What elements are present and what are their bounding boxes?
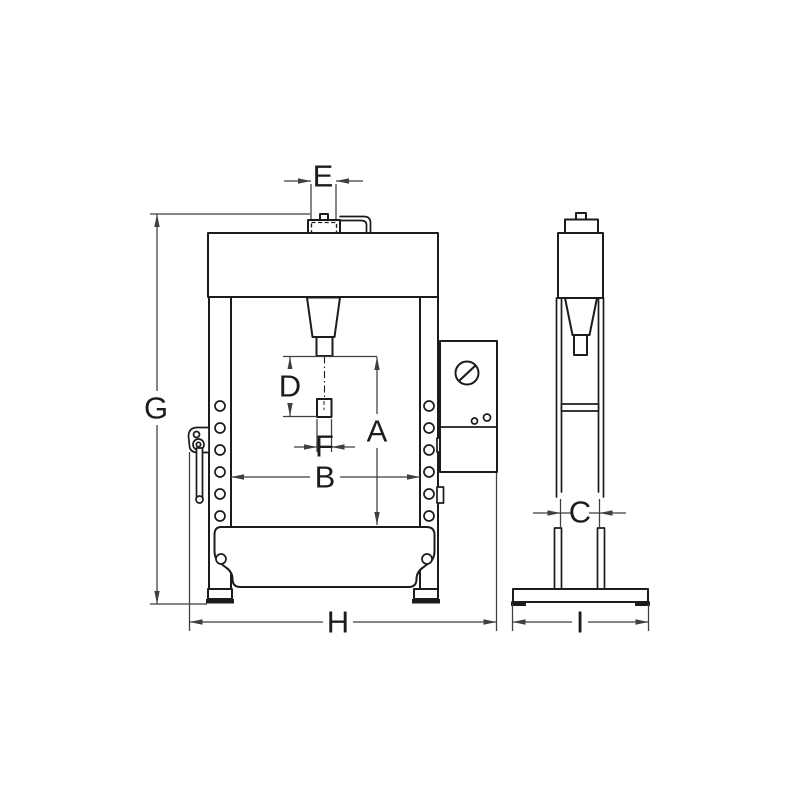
arrowhead xyxy=(298,178,311,183)
table-pin-right xyxy=(422,554,432,564)
left-foot xyxy=(208,589,232,599)
side-base xyxy=(513,589,648,602)
cylinder-nipple xyxy=(320,214,328,220)
arrowhead xyxy=(154,214,159,227)
hole xyxy=(215,401,225,411)
dimension-f: F xyxy=(294,419,355,464)
side-view xyxy=(511,213,650,606)
side-ram-nose xyxy=(574,335,587,355)
hole xyxy=(215,445,225,455)
right-foot-pad xyxy=(412,599,440,604)
side-cylinder xyxy=(558,233,603,298)
arrowhead xyxy=(154,591,159,604)
table-pin-left xyxy=(216,554,226,564)
arrowhead xyxy=(374,357,379,370)
pump-handle-end xyxy=(196,496,203,503)
dimension-c-label: C xyxy=(569,495,591,530)
right-foot xyxy=(414,589,438,599)
pump-handle xyxy=(197,448,203,498)
side-cylinder-nipple xyxy=(576,213,586,220)
arrowhead xyxy=(287,403,292,416)
handle-socket-inner xyxy=(340,221,367,234)
box-hole xyxy=(484,414,491,421)
press-technical-drawing: G E D A xyxy=(0,0,800,800)
hole xyxy=(215,489,225,499)
arrowhead xyxy=(636,619,649,624)
hole xyxy=(424,401,434,411)
arrowhead xyxy=(231,474,244,479)
hole xyxy=(215,423,225,433)
arrowhead xyxy=(513,619,526,624)
pump-pivot-center xyxy=(196,442,200,446)
arrowhead xyxy=(600,510,613,515)
arrowhead xyxy=(407,474,420,479)
ram-cone xyxy=(307,298,340,338)
arrowhead xyxy=(484,619,497,624)
front-view xyxy=(189,214,498,604)
bracket-hole xyxy=(194,432,200,438)
dimension-e: E xyxy=(284,159,363,220)
ram-nose xyxy=(317,337,333,356)
dimension-b-label: B xyxy=(315,460,336,495)
hole xyxy=(424,489,434,499)
dimension-h-label: H xyxy=(327,605,349,640)
dimension-b: B xyxy=(231,460,420,495)
side-ram-cone xyxy=(565,298,597,335)
dimension-c: C xyxy=(533,495,626,530)
box-hole xyxy=(472,418,478,424)
clamp-tab-lower xyxy=(437,487,444,503)
dimension-e-label: E xyxy=(313,159,334,194)
hole xyxy=(424,511,434,521)
dimension-g-label: G xyxy=(144,391,168,426)
arrowhead xyxy=(548,510,561,515)
dimension-d-label: D xyxy=(279,369,301,404)
hole xyxy=(424,423,434,433)
arrowhead xyxy=(190,619,203,624)
dimension-a: A xyxy=(363,357,391,525)
side-cylinder-cap xyxy=(565,220,598,234)
hole xyxy=(215,511,225,521)
drawing-canvas: G E D A xyxy=(0,0,800,800)
arrowhead xyxy=(374,512,379,525)
left-foot-pad xyxy=(206,599,234,604)
dimension-i-label: I xyxy=(576,605,585,640)
side-table-plate-front xyxy=(555,528,562,589)
arrowhead xyxy=(336,178,349,183)
side-table-pin xyxy=(562,404,599,411)
side-table-plate-rear xyxy=(598,528,605,589)
hole xyxy=(215,467,225,477)
side-base-pad xyxy=(511,602,526,607)
dimension-a-label: A xyxy=(367,414,388,449)
side-base-pad xyxy=(635,602,650,607)
hole xyxy=(424,467,434,477)
control-box xyxy=(440,341,497,472)
dimension-f-label: F xyxy=(315,429,334,464)
work-table xyxy=(215,527,435,587)
hole xyxy=(424,445,434,455)
dimension-i: I xyxy=(513,604,649,640)
press-head xyxy=(208,233,438,297)
